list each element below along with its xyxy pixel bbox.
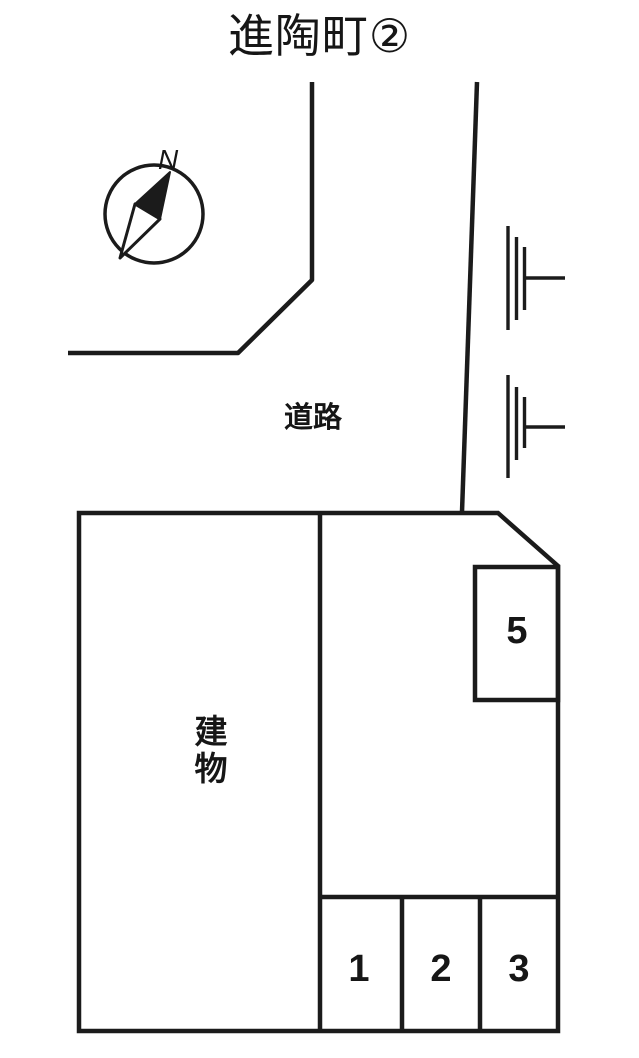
compass-north-label: N <box>158 144 178 176</box>
utility-pole-icon-bottom <box>508 375 565 478</box>
parking-space-1-label: 1 <box>337 950 381 988</box>
building-label: 建物 <box>184 714 232 788</box>
parking-lot-map: 進陶町② N 道路 建物 1 2 3 5 <box>0 0 639 1058</box>
road-right-edge-line <box>462 82 477 512</box>
parking-space-5-label: 5 <box>495 612 539 650</box>
parking-space-3-label: 3 <box>497 950 541 988</box>
map-linework <box>0 0 639 1058</box>
parking-space-2-label: 2 <box>419 950 463 988</box>
compass-icon <box>105 165 203 263</box>
map-title: 進陶町② <box>0 10 639 62</box>
road-label: 道路 <box>261 394 365 436</box>
utility-pole-icon-top <box>508 226 565 330</box>
